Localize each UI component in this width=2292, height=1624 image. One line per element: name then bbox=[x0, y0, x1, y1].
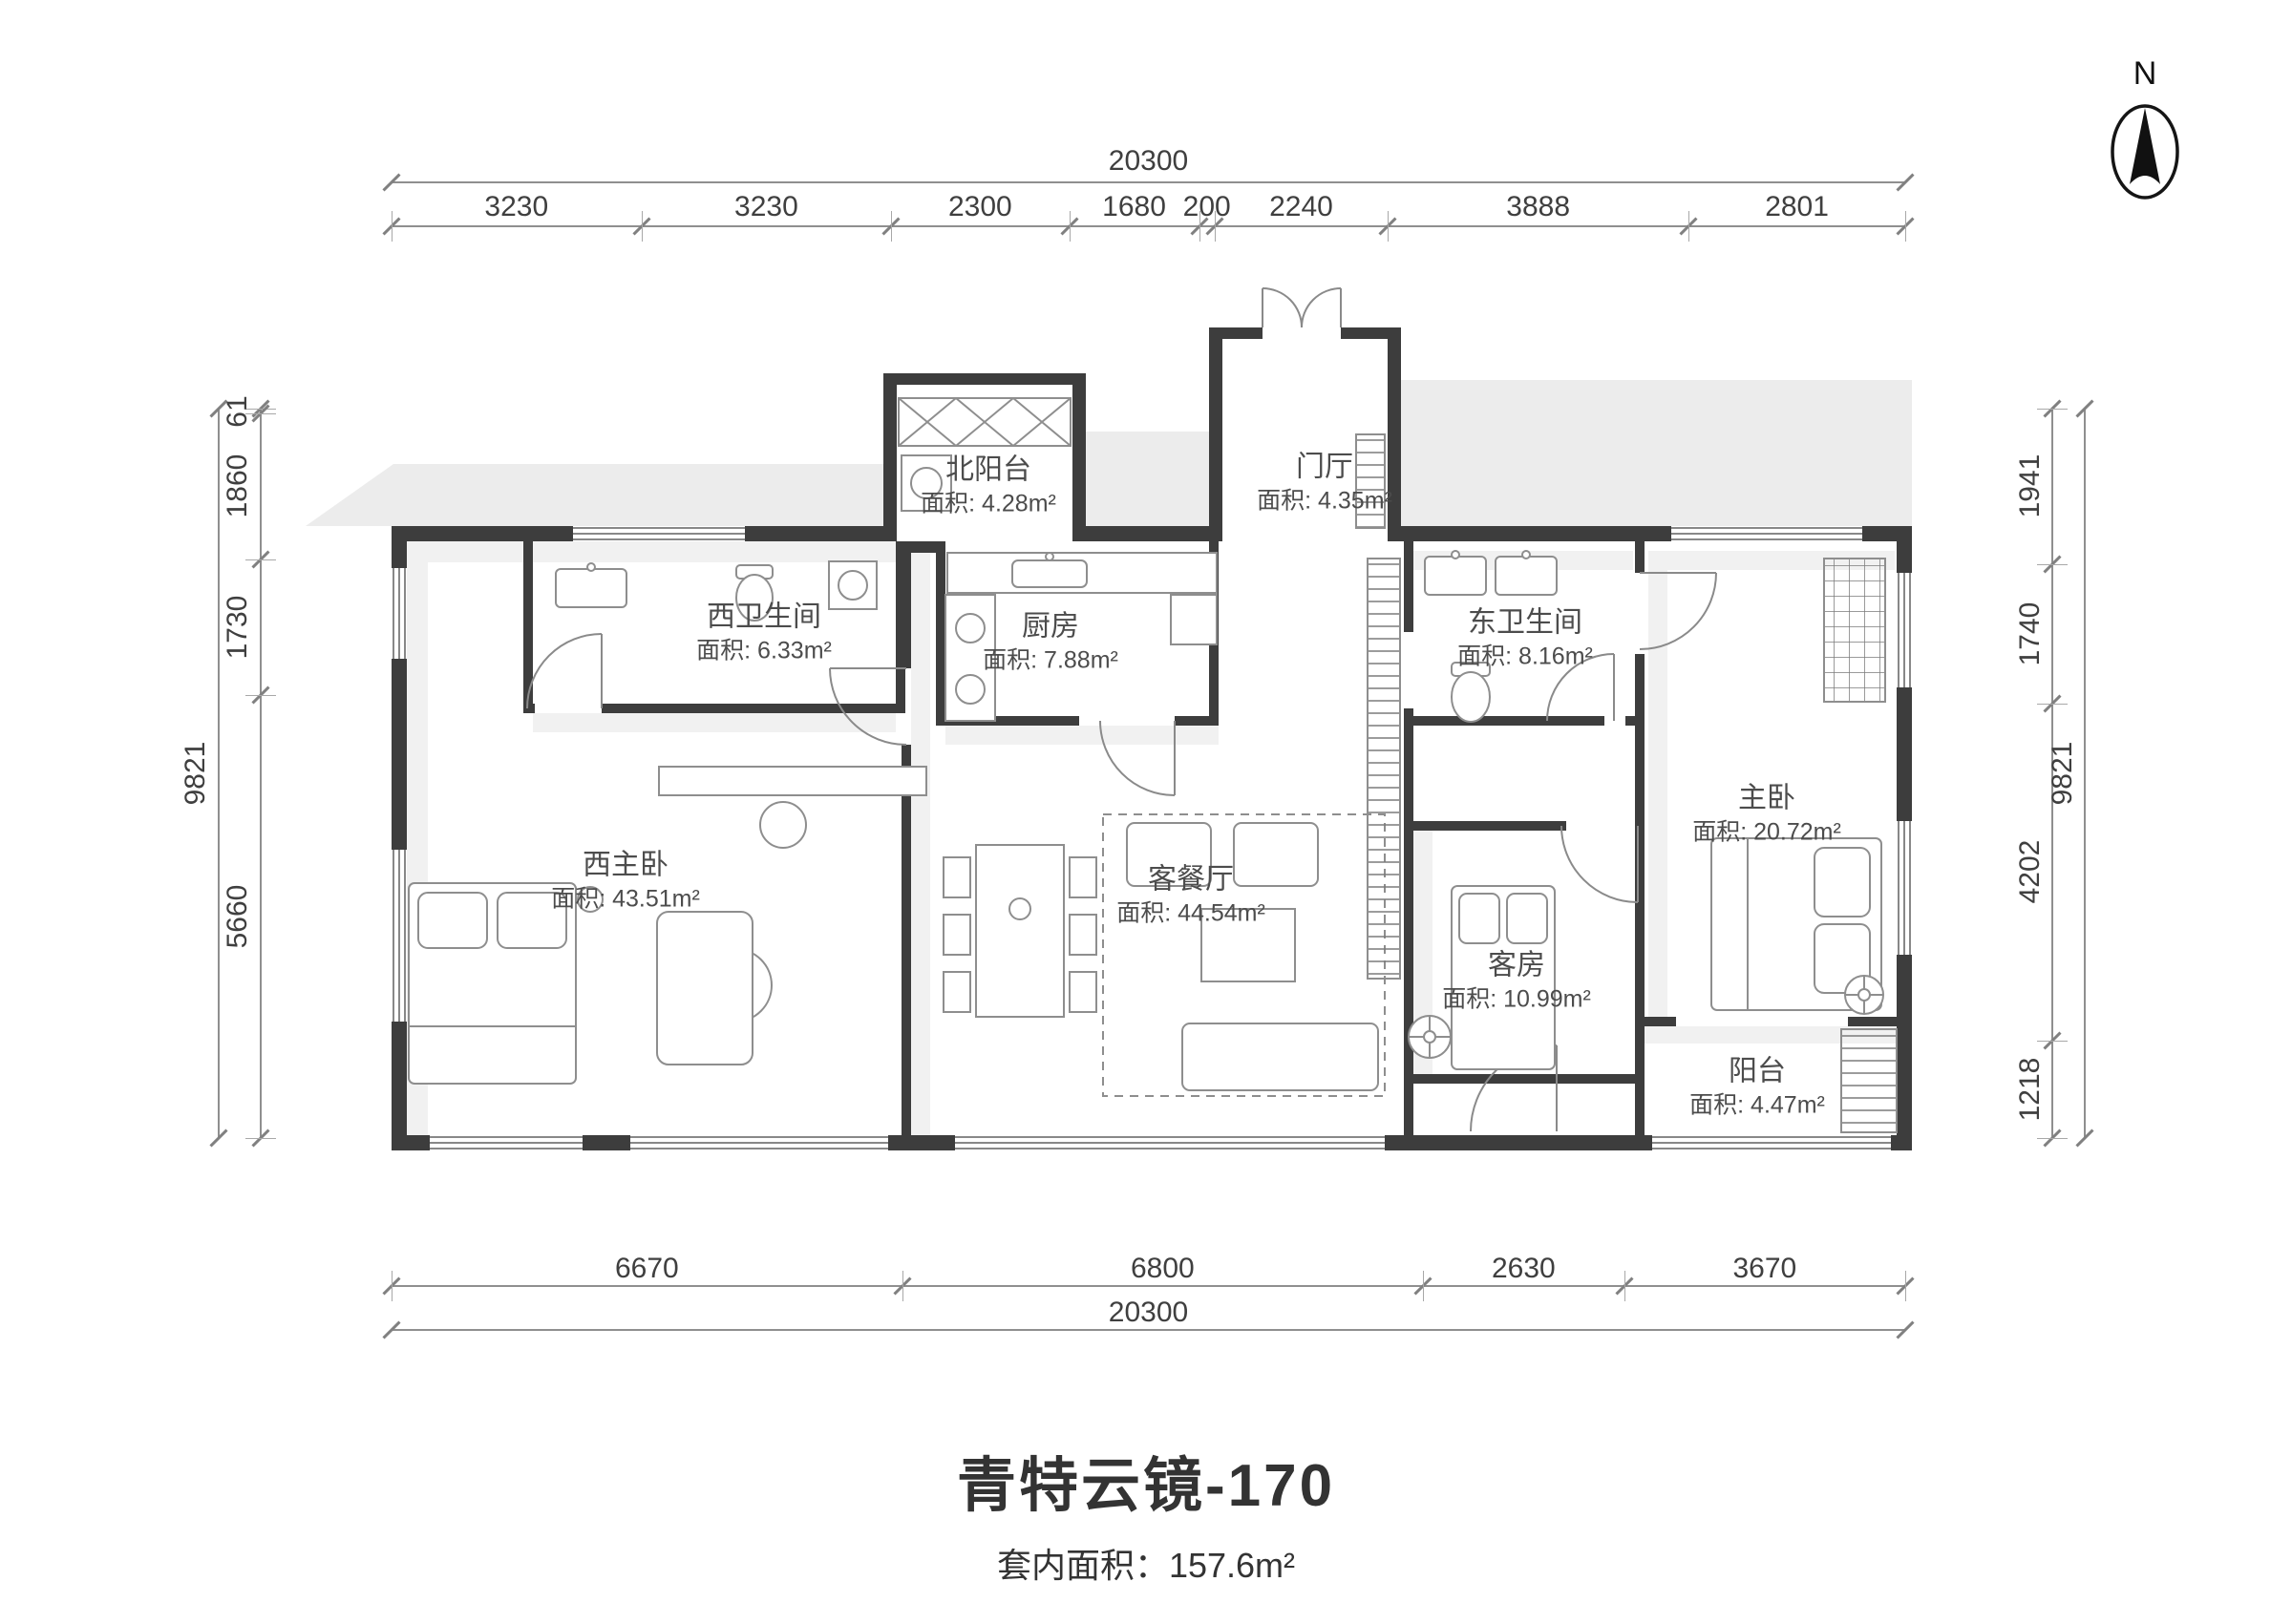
dim-total: 9821 bbox=[180, 742, 212, 806]
wardrobe-icon bbox=[1824, 559, 1885, 702]
dim-total: 9821 bbox=[2047, 742, 2079, 806]
room-area: 面积: 8.16m² bbox=[1457, 641, 1593, 672]
plan-title: 青特云镜-170 bbox=[957, 1437, 1335, 1523]
room-area: 面积: 6.33m² bbox=[696, 635, 832, 666]
dim-value: 2801 bbox=[1765, 191, 1829, 223]
room-area: 面积: 10.99m² bbox=[1442, 983, 1591, 1015]
desk-icon bbox=[659, 767, 926, 848]
room-label-north-balcony: 北阳台 面积: 4.28m² bbox=[921, 451, 1056, 519]
dim-value: 1218 bbox=[2014, 1058, 2047, 1122]
room-name: 厨房 bbox=[983, 607, 1118, 644]
cabinet-icon bbox=[1368, 559, 1400, 979]
room-area: 面积: 20.72m² bbox=[1692, 816, 1841, 848]
sink-icon bbox=[556, 563, 626, 607]
room-label-master-bedroom: 主卧 面积: 20.72m² bbox=[1692, 779, 1841, 848]
drying-rack-icon bbox=[1841, 1029, 1897, 1132]
dim-value: 200 bbox=[1183, 191, 1231, 223]
room-area: 面积: 7.88m² bbox=[983, 644, 1118, 676]
room-name: 门厅 bbox=[1257, 448, 1392, 485]
floor-plan-svg bbox=[0, 0, 2292, 1624]
dim-value: 1680 bbox=[1102, 191, 1166, 223]
dim-value: 3888 bbox=[1506, 191, 1570, 223]
dim-value: 3230 bbox=[734, 191, 798, 223]
dim-value: 1730 bbox=[222, 595, 254, 659]
room-area: 面积: 4.47m² bbox=[1689, 1089, 1825, 1121]
room-label-living-dining: 客餐厅 面积: 44.54m² bbox=[1116, 860, 1265, 929]
room-name: 客房 bbox=[1442, 946, 1591, 983]
room-label-east-bathroom: 东卫生间 面积: 8.16m² bbox=[1457, 603, 1593, 672]
room-name: 西卫生间 bbox=[696, 598, 832, 635]
dim-value: 4202 bbox=[2014, 840, 2047, 904]
room-area: 面积: 43.51m² bbox=[551, 883, 700, 915]
room-name: 东卫生间 bbox=[1457, 603, 1593, 641]
dim-value: 2240 bbox=[1269, 191, 1333, 223]
room-name: 主卧 bbox=[1692, 779, 1841, 816]
floor-plan-page: 北阳台 面积: 4.28m² 门厅 面积: 4.35m² 西卫生间 面积: 6.… bbox=[0, 0, 2292, 1624]
dim-total: 20300 bbox=[1109, 145, 1188, 178]
dim-value: 6670 bbox=[615, 1253, 679, 1285]
room-name: 客餐厅 bbox=[1116, 860, 1265, 897]
sofa-icon bbox=[1103, 814, 1385, 1096]
dim-value: 61 bbox=[222, 395, 254, 427]
room-name: 北阳台 bbox=[921, 451, 1056, 488]
room-label-guest-room: 客房 面积: 10.99m² bbox=[1442, 946, 1591, 1015]
dining-table-icon bbox=[944, 845, 1096, 1017]
north-arrow: N bbox=[2100, 55, 2190, 217]
room-label-kitchen: 厨房 面积: 7.88m² bbox=[983, 607, 1118, 676]
ac-unit-icon bbox=[1845, 976, 1883, 1014]
room-label-west-master-bedroom: 西主卧 面积: 43.51m² bbox=[551, 846, 700, 915]
armchair-icon bbox=[657, 912, 753, 1065]
room-area: 面积: 4.35m² bbox=[1257, 485, 1392, 517]
railing-icon bbox=[899, 398, 1071, 446]
north-arrow-icon bbox=[2101, 93, 2189, 212]
ac-unit-icon bbox=[1409, 1016, 1451, 1058]
dim-value: 2300 bbox=[948, 191, 1012, 223]
north-label: N bbox=[2100, 55, 2190, 93]
dim-value: 1740 bbox=[2014, 602, 2047, 666]
room-area: 面积: 44.54m² bbox=[1116, 897, 1265, 929]
room-label-west-bathroom: 西卫生间 面积: 6.33m² bbox=[696, 598, 832, 666]
dim-value: 1941 bbox=[2014, 454, 2047, 518]
room-name: 西主卧 bbox=[551, 846, 700, 883]
dim-value: 3670 bbox=[1733, 1253, 1797, 1285]
dim-value: 1860 bbox=[222, 454, 254, 518]
title-block: 青特云镜-170 套内面积：157.6m² bbox=[957, 1437, 1335, 1588]
washer-icon bbox=[829, 561, 877, 609]
dim-value: 3230 bbox=[484, 191, 548, 223]
dim-total: 20300 bbox=[1109, 1297, 1188, 1329]
room-label-south-balcony: 阳台 面积: 4.47m² bbox=[1689, 1052, 1825, 1121]
room-area: 面积: 4.28m² bbox=[921, 488, 1056, 519]
room-name: 阳台 bbox=[1689, 1052, 1825, 1089]
dim-value: 5660 bbox=[222, 884, 254, 948]
room-label-foyer: 门厅 面积: 4.35m² bbox=[1257, 448, 1392, 517]
plan-subtitle: 套内面积：157.6m² bbox=[957, 1538, 1335, 1588]
dim-value: 2630 bbox=[1492, 1253, 1556, 1285]
dim-value: 6800 bbox=[1131, 1253, 1195, 1285]
